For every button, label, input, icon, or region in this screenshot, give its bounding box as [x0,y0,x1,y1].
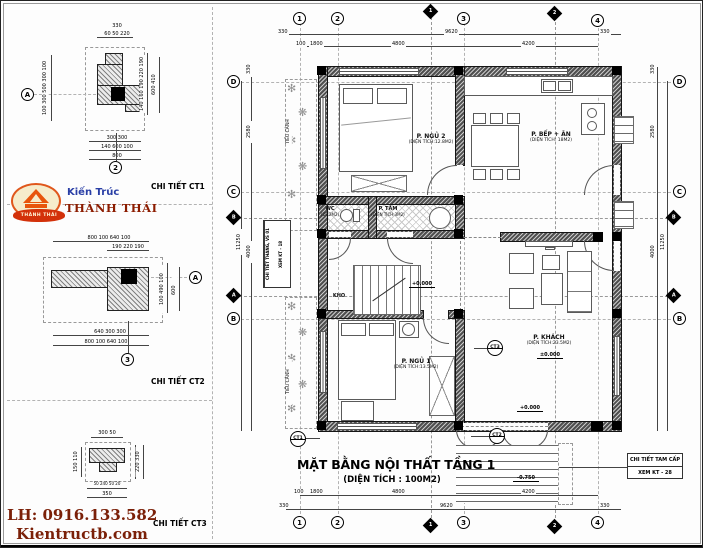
ct2-dim-line [107,250,149,251]
ct1-section-shape [97,64,123,86]
logo-monogram-base [25,204,47,208]
door-gap-kitchen-east [614,165,620,195]
steps-detail-note: CHI TIẾT TAM CẤP XEM KT - 28 [627,453,683,479]
level-mark-plus-entry: +0.000 [517,405,543,412]
dim-top: 100 [295,41,307,47]
garden-label-lower: TIỂU CẢNH [287,359,292,405]
note-line-2: XEM KT - 28 [628,467,682,479]
dim-right: 2580 [651,121,657,143]
room-name: P. BẾP + ĂN [515,131,587,138]
dim-top: 9620 [444,29,459,35]
column [454,421,463,430]
column [593,232,603,242]
dim-left: 2580 [247,121,253,143]
ct3-dim: 150 110 [74,448,80,476]
level-mark-plus-hall: +0.000 [409,281,435,288]
column [612,421,621,430]
ct2-dim-line [167,263,168,313]
wall-kitchen-living [501,233,597,241]
ct1-dim-line [147,53,148,115]
dim-top: 1800 [309,41,324,47]
ct1-dim-line [159,57,160,113]
plant-icon: ❋ [298,379,307,390]
ct1-dim: 600 410 [152,63,158,107]
garden-label-upper: TIỂU CẢNH [287,109,292,155]
grid-bubble-C-right: C [673,185,686,198]
architectural-drawing-sheet: A 330 60 50 220 100 300 500 300 100 140 … [0,0,703,548]
ct3-dim-line [143,445,144,479]
coffee-table [541,273,563,305]
ct1-dim-line [51,55,52,121]
wall-bed2-south [319,197,464,204]
dim-bottom: 9620 [439,503,454,509]
ct3-dim-line [81,447,82,477]
ct1-dim-line [89,150,141,151]
armchair [509,253,534,274]
section-label: B [232,215,236,220]
window-kitchen-north [506,68,568,75]
ct1-dim-line [89,159,141,160]
ct1-dim: 100 300 500 300 100 [43,57,49,119]
section-label: 1 [429,9,432,14]
room-label-living: P. KHÁCH (DIỆN TÍCH:23.5M2) [513,334,585,346]
ct3-section-shape [99,462,117,472]
room-area: (DIỆN TÍCH:23.5M2) [513,341,585,346]
wc-toilet-tank [353,209,360,222]
room-label-wc: WC (DT:2M2) [311,206,349,217]
dim-left: 4000 [247,241,253,263]
dim-right: 11250 [661,229,667,255]
dim-right: 330 [651,61,657,77]
grid-line-4 [598,23,599,519]
dining-chair [490,113,503,124]
kitchen-sink-basin [558,81,571,91]
ct3-dim-line [87,488,127,489]
dim-left: 11250 [237,229,243,255]
ct1-dim: 800 [101,153,133,159]
dim-top: 330 [277,29,289,35]
dim-line [300,495,598,496]
section-label: B [672,215,676,220]
plan-title: MẶT BẰNG NỘI THẤT TẦNG 1 [297,457,487,472]
door-gap-wc [329,232,351,237]
ct3-dim: 50 240 50 20 [83,482,131,487]
ct2-dim: 800 100 640 100 [61,339,151,345]
callout-leader [474,348,487,349]
room-label-bed2: P. NGỦ 2 (DIỆN TÍCH:12.8M2) [393,133,469,145]
ct1-dim: 140 600 100 [91,144,143,150]
grid-bubble-D-left: D [227,75,240,88]
column [612,66,621,75]
ct3-label: CHI TIẾT CT3 [153,519,207,528]
plan-subtitle: (DIỆN TÍCH : 100M2) [297,475,487,485]
armchair [509,288,534,309]
dim-line [241,81,242,431]
dining-chair [473,169,486,180]
note-line-1: CHI TIẾT TAM CẤP [628,454,682,467]
dining-chair [507,113,520,124]
bath-tub [429,207,451,229]
room-label-bath: P. TẮM (DIỆN TÍCH:3M2) [364,206,412,217]
room-name: P. NGỦ 2 [393,133,469,140]
grid-bubble-C-left: C [227,185,240,198]
column [591,421,603,431]
column [454,195,463,204]
section-label: A [672,293,676,298]
bed2-pillow [377,88,407,104]
ct1-label: CHI TIẾT CT1 [151,182,205,191]
wall-bed2-east [456,67,464,165]
window-bed2-west [320,97,326,169]
entrance-beam-line [456,426,548,427]
door-gap-bath [387,232,413,237]
ct3-dim-line [91,437,123,438]
ct3-dim-line [87,497,127,498]
ct1-dim: 300 300 [93,135,141,141]
ct1-callout-bubble: 2 [109,161,122,174]
dim-line [657,67,658,431]
grid-bubble-2-bottom: 2 [331,516,344,529]
dim-top: 330 [599,29,611,35]
logo-banner: THÀNH THÁI [13,209,65,222]
panel-separator-vertical [212,7,213,539]
grid-bubble-4-top: 4 [591,14,604,27]
grid-bubble-3-top: 3 [457,12,470,25]
washing-machine-drum-icon [402,323,415,336]
wall-wc-bath-divider [369,197,376,238]
plant-icon: ❋ [298,161,307,172]
window-living-east [614,336,620,396]
ct2-dim: 600 [172,273,178,307]
column [317,229,326,238]
logo-text-kien-truc: Kiến Trúc [67,187,119,198]
callout-leader [306,438,320,439]
contact-website: Kientructb.com [7,525,157,543]
ct1-callout-line [116,133,117,161]
room-area: (DIỆN TÍCH:3M2) [364,212,412,217]
bed1-pillow [369,323,394,336]
side-steps-lower [614,201,634,229]
column [454,309,463,318]
grid-bubble-D-right: D [673,75,686,88]
plan-callout-ct1: CT1 [290,431,306,447]
plant-icon: ✻ [287,189,296,200]
section-label: 1 [429,523,432,528]
stair-detail-note: CHI TIẾT THANG, VS 01 XEM KT - 18 [263,220,291,288]
dining-table [471,125,519,167]
stove-burner-icon [587,121,597,131]
level-mark-minus-steps: -0.750 [513,475,539,482]
column [454,66,463,75]
stove-burner-icon [587,108,597,118]
bed2-pillow [343,88,373,104]
opening-beam-hall-living [460,241,461,311]
grid-bubble-B-right: B [673,312,686,325]
dim-bottom: 100 [293,489,305,495]
ct1-dim-line [97,37,133,38]
room-area: (DIỆN TÍCH:12.8M2) [393,140,469,145]
column [612,232,621,241]
side-table [542,255,560,270]
column [317,66,326,75]
dim-top: 4800 [391,41,406,47]
callout-leader [471,436,489,437]
ct2-axis-bubble: A [189,271,202,284]
contact-phone: LH: 0916.133.582 [7,506,157,524]
ct2-dim-line [53,241,149,242]
door-gap-bed2 [457,165,463,195]
dim-line [667,81,668,431]
ct3-section-shape [89,448,125,463]
dim-line [300,46,598,47]
room-label-storage: KHO [327,293,351,299]
column [317,309,326,318]
plant-icon: ❋ [298,107,307,118]
plant-icon: ❋ [298,327,307,338]
ct1-dim-line [89,141,141,142]
ct2-core-column [121,269,137,284]
room-area: (DIỆN TÍCH: 18M2) [515,138,587,143]
grid-bubble-1-top: 1 [293,12,306,25]
section-label: A [232,293,236,298]
kitchen-sink-basin [543,81,556,91]
section-line-1 [431,17,432,523]
sofa [567,251,592,313]
column [454,229,463,238]
ct2-dim: 100 490 100 [160,265,166,313]
room-name: P. NGỦ 1 [380,358,452,365]
window-bed1-west [320,331,326,393]
column [612,309,621,318]
side-steps-upper [614,116,634,144]
plant-icon: ✻ [287,301,296,312]
ct1-core-column [111,87,125,101]
dim-bottom: 1800 [309,489,324,495]
section-label: 2 [553,11,556,16]
ct2-dim: 190 220 190 [105,244,151,250]
dim-bottom: 4800 [391,489,406,495]
room-name: P. KHÁCH [513,334,585,341]
ct3-dim: 220 330 [136,447,142,477]
opening-beam-kitchen-living [464,237,501,238]
room-label-bed1: P. NGỦ 1 (DIỆN TÍCH:13.5M2) [380,358,452,370]
tv-stand [545,247,555,250]
grid-bubble-B-left: B [227,312,240,325]
ct1-dim: 140 160 190 220 190 [140,55,146,113]
dining-chair [507,169,520,180]
dining-chair [490,169,503,180]
window-bed1-south [337,423,417,430]
room-area: (DT:2M2) [311,212,349,217]
wall-bed1-east [456,311,464,431]
plan-callout-ct3: CT3 [487,340,503,356]
column [317,421,326,430]
ct1-axis-bubble: A [21,88,34,101]
grid-bubble-3-bottom: 3 [457,516,470,529]
room-area: (DIỆN TÍCH:13.5M2) [380,365,452,370]
dining-chair [473,113,486,124]
dim-right: 4000 [651,241,657,263]
dim-bottom: 330 [278,503,290,509]
note-line-2: XEM KT - 18 [278,221,290,287]
note-leader [559,467,627,468]
ct3-dim: 300 50 [91,430,123,436]
grid-bubble-4-bottom: 4 [591,516,604,529]
window-bed2-north [339,68,419,75]
ct2-label: CHI TIẾT CT2 [151,377,205,386]
ct2-dim-line [179,267,180,311]
dim-top: 4200 [521,41,536,47]
grid-bubble-2-top: 2 [331,12,344,25]
logo-text-thanh-thai: THÀNH THÁI [65,201,157,215]
door-gap-living-east [614,241,620,271]
ct2-callout-line [128,321,129,353]
note-line-1: CHI TIẾT THANG, VS 01 [264,221,278,287]
bed1-desk [341,401,374,421]
ct3-dim: 350 [96,491,118,497]
level-mark-zero: ±0.000 [537,352,563,359]
dim-line [286,509,621,510]
dim-bottom: 330 [599,503,611,509]
plan-callout-ct2: CT2 [489,428,505,444]
hall-closet [351,175,407,192]
plant-icon: ✻ [287,83,296,94]
column [317,195,326,204]
grid-bubble-1-bottom: 1 [293,516,306,529]
kitchen-counter [464,76,613,96]
panel-separator-ct2-ct3 [7,400,212,401]
room-label-kitchen: P. BẾP + ĂN (DIỆN TÍCH: 18M2) [515,131,587,143]
ct2-dim: 800 100 640 100 [61,235,157,241]
ct2-dim-line [53,335,149,336]
ct2-dim: 640 300 300 [75,329,145,335]
ct2-dim-line [53,345,149,346]
ct2-callout-bubble: 3 [121,353,134,366]
bed1-pillow [341,323,366,336]
dim-left: 330 [247,61,253,77]
dim-bottom: 4200 [521,489,536,495]
section-label: 2 [553,524,556,529]
ct1-dim: 330 [97,23,137,29]
ct2-axis-line [151,277,187,278]
